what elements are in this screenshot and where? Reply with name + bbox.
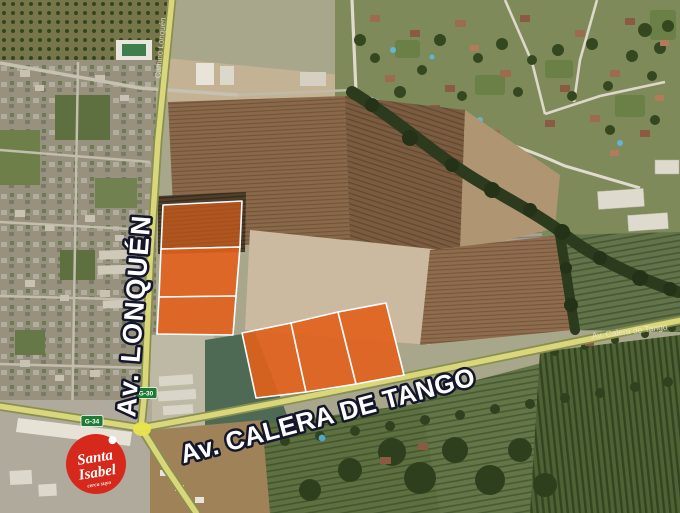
map-screenshot: G-30 G-34 Camino Lonquén Av. Calera de T… — [0, 0, 680, 513]
orchard-top-left — [0, 0, 168, 64]
highlight-parcel-north-1 — [161, 201, 242, 249]
highlight-parcel-north-2 — [159, 247, 240, 297]
intersection — [133, 422, 151, 436]
highlight-parcel-north-3 — [157, 296, 236, 335]
map-canvas: G-30 G-34 Camino Lonquén Av. Calera de T… — [0, 0, 680, 513]
shield-g34-label: G-34 — [85, 419, 100, 426]
route-shield-g34: G-34 — [81, 416, 103, 427]
